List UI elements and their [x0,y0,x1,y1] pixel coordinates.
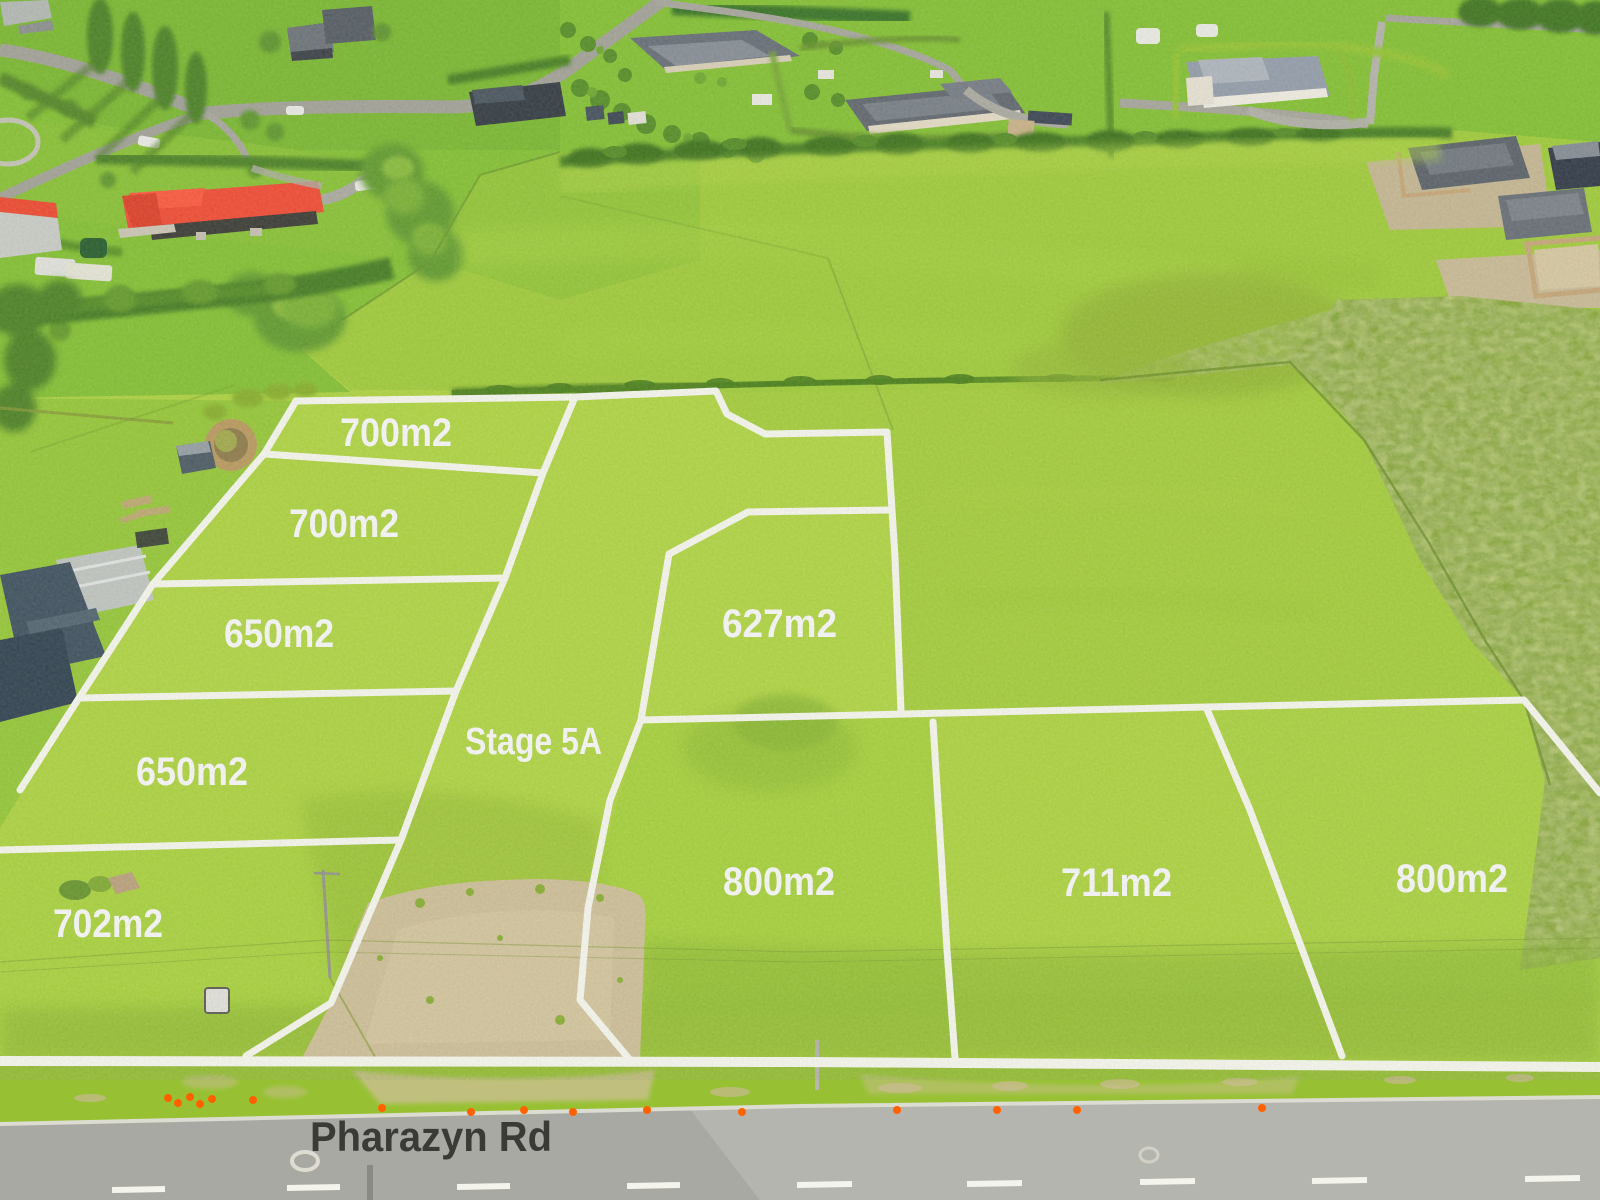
svg-text:Pharazyn Rd: Pharazyn Rd [310,1113,552,1160]
